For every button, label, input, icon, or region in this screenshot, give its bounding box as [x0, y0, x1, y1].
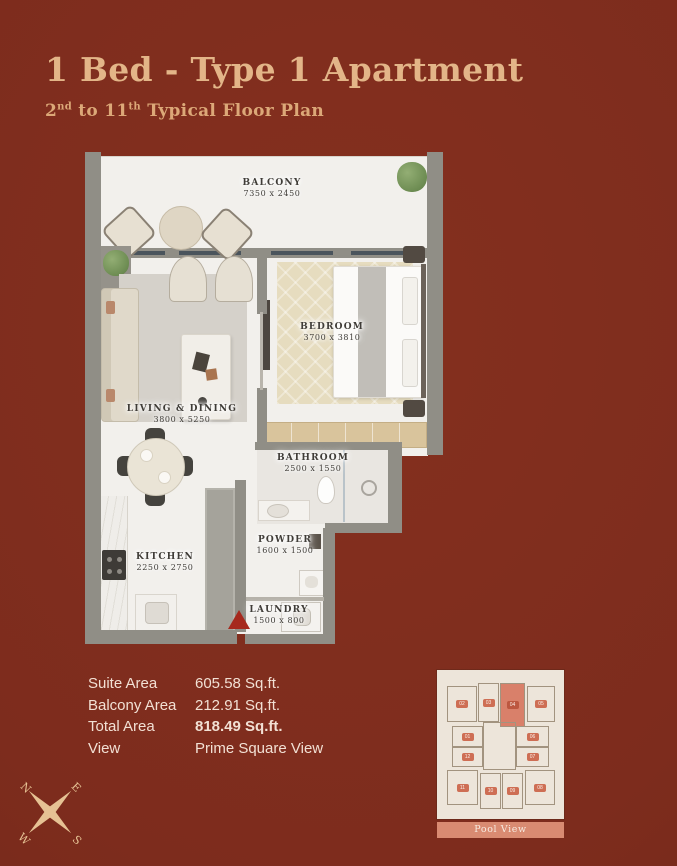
room-label-kitchen: KITCHEN 2250 x 2750	[136, 552, 194, 572]
stove	[102, 550, 126, 580]
key-plan-unit: 06	[516, 726, 549, 747]
sink	[267, 504, 289, 518]
burner	[107, 557, 112, 562]
accent-armchair	[169, 256, 207, 302]
unit-number: 02	[456, 700, 468, 708]
balcony-table	[159, 206, 203, 250]
page-title: 1 Bed - Type 1 Apartment	[45, 50, 605, 89]
key-plan-core	[483, 722, 516, 770]
shower-drain	[361, 480, 377, 496]
living-plant	[103, 250, 129, 276]
wall-partition-upper	[257, 256, 267, 314]
room-dims: 1600 x 1500	[257, 546, 314, 555]
room-label-laundry: LAUNDRY 1500 x 800	[249, 605, 308, 625]
powder-sink	[299, 570, 325, 596]
laundry-divider	[246, 597, 324, 601]
room-name: LIVING & DINING	[127, 404, 237, 414]
compass-icon: N E W S	[4, 766, 96, 858]
spec-row-balcony-area: Balcony Area 212.91 Sq.ft.	[88, 695, 428, 717]
room-label-bedroom: BEDROOM 3700 x 3810	[300, 322, 364, 342]
window-glass	[271, 251, 333, 255]
key-plan-unit: 08	[525, 770, 555, 805]
room-name: KITCHEN	[136, 552, 194, 562]
spec-value: Prime Square View	[195, 738, 323, 760]
floor-plan: BALCONY 7350 x 2450 LIVING & DINING 3800…	[85, 150, 447, 650]
spec-row-total-area: Total Area 818.49 Sq.ft.	[88, 716, 428, 738]
key-plan-unit: 10	[480, 773, 501, 809]
unit-number: 12	[462, 753, 474, 761]
page-subtitle: 2nd to 11th Typical Floor Plan	[45, 101, 465, 121]
subtitle-mid: to 11	[72, 101, 129, 121]
compass-w: W	[15, 831, 33, 849]
room-name: BATHROOM	[277, 453, 349, 463]
key-plan-unit: 01	[452, 726, 483, 747]
key-plan-unit: 03	[478, 683, 499, 722]
bed-pillow	[402, 339, 418, 387]
subtitle-rest: Typical Floor Plan	[141, 101, 324, 121]
wall-bottom-kitchen	[85, 630, 237, 644]
area-specs: Suite Area 605.58 Sq.ft. Balcony Area 21…	[88, 673, 428, 759]
sliding-door	[260, 312, 263, 390]
unit-number: 07	[527, 753, 539, 761]
toilet	[317, 476, 335, 504]
compass-e: E	[69, 780, 84, 795]
unit-number: 05	[535, 700, 547, 708]
room-dims: 2500 x 1550	[277, 464, 349, 473]
entry-marker	[228, 610, 250, 629]
room-name: BEDROOM	[300, 322, 364, 332]
kitchen-sink-cabinet	[135, 594, 177, 632]
unit-number: 03	[483, 699, 495, 707]
room-name: POWDER	[257, 535, 314, 545]
unit-number: 09	[507, 787, 519, 795]
key-plan-unit: 12	[452, 747, 483, 767]
room-dims: 7350 x 2450	[243, 189, 302, 198]
room-name: LAUNDRY	[249, 605, 308, 615]
brochure-page: { "colors": { "background": "#7E2C1E", "…	[0, 0, 677, 866]
spec-label: View	[88, 738, 195, 760]
dining-table	[127, 438, 185, 496]
sofa-pillow	[106, 301, 115, 314]
spec-label: Suite Area	[88, 673, 195, 695]
nightstand	[403, 246, 425, 263]
room-dims: 3800 x 5250	[127, 415, 237, 424]
sofa	[101, 288, 139, 422]
spec-label: Balcony Area	[88, 695, 195, 717]
spec-row-suite-area: Suite Area 605.58 Sq.ft.	[88, 673, 428, 695]
subtitle-prefix: 2	[45, 101, 57, 121]
room-label-powder: POWDER 1600 x 1500	[257, 535, 314, 555]
room-label-living: LIVING & DINING 3800 x 5250	[127, 404, 237, 424]
wall-bathroom-right	[388, 442, 402, 533]
plate	[140, 449, 153, 462]
wall-bottom-laundry	[245, 634, 335, 644]
subtitle-ordinal-nd: nd	[57, 101, 72, 112]
window-glass	[351, 251, 409, 255]
unit-number: 10	[485, 787, 497, 795]
balcony-plant	[397, 162, 427, 192]
table-decor	[205, 368, 217, 380]
key-plan-unit: 02	[447, 686, 477, 722]
key-plan-unit: 11	[447, 770, 478, 805]
wall-powder-right	[323, 528, 335, 644]
unit-number: 06	[527, 733, 539, 741]
accent-armchair	[215, 256, 253, 302]
key-plan: 02 03 04 05 01 12 06 07 11 10 09 08	[437, 670, 564, 819]
key-plan-unit: 07	[516, 747, 549, 767]
wall-right	[427, 152, 443, 455]
unit-number: 08	[534, 784, 546, 792]
sofa-pillow	[106, 389, 115, 402]
room-label-balcony: BALCONY 7350 x 2450	[243, 178, 302, 198]
room-label-bathroom: BATHROOM 2500 x 1550	[277, 453, 349, 473]
room-dims: 3700 x 3810	[300, 333, 364, 342]
wall-partition-lower	[257, 388, 267, 446]
bed-pillow	[402, 277, 418, 325]
wall-left	[85, 152, 101, 642]
unit-number: 11	[457, 784, 469, 792]
sink	[305, 576, 318, 588]
key-plan-unit-highlighted: 04	[500, 683, 525, 727]
key-plan-unit: 05	[527, 686, 555, 722]
spec-value: 605.58 Sq.ft.	[195, 673, 280, 695]
unit-number: 04	[507, 701, 519, 709]
spec-row-view: View Prime Square View	[88, 738, 428, 760]
compass-s: S	[70, 833, 85, 848]
wall-bathroom-top	[255, 442, 402, 450]
nightstand	[403, 400, 425, 417]
room-name: BALCONY	[243, 178, 302, 188]
wall-step	[325, 523, 402, 533]
spec-value: 818.49 Sq.ft.	[195, 716, 283, 738]
spec-value: 212.91 Sq.ft.	[195, 695, 280, 717]
room-dims: 1500 x 800	[249, 616, 308, 625]
pool-view-label: Pool View	[437, 822, 564, 838]
subtitle-ordinal-th: th	[129, 101, 142, 112]
plate	[158, 471, 171, 484]
sink	[145, 602, 169, 624]
key-plan-unit: 09	[502, 773, 523, 809]
room-dims: 2250 x 2750	[136, 563, 194, 572]
bed-headboard	[421, 264, 426, 398]
unit-number: 01	[462, 733, 474, 741]
bathroom-vanity	[258, 500, 310, 521]
spec-label: Total Area	[88, 716, 195, 738]
